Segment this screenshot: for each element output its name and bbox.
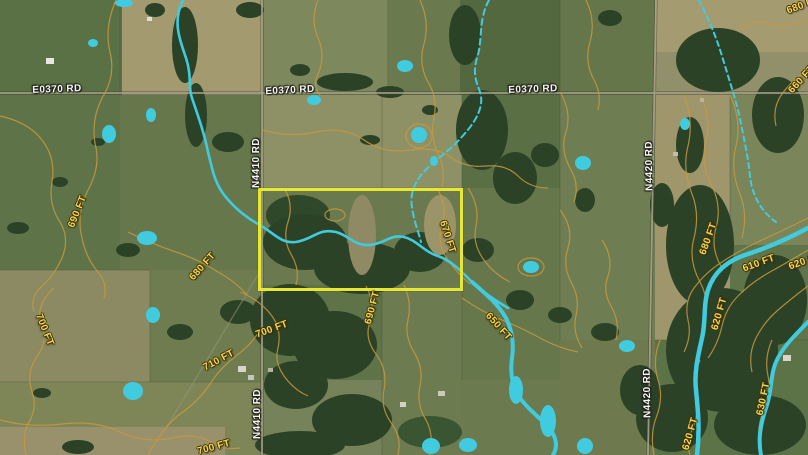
map-viewport[interactable]: E0370 RDE0370 RDE0370 RDN4410 RDN4410 RD…	[0, 0, 808, 455]
selection-rectangle[interactable]	[258, 188, 463, 291]
